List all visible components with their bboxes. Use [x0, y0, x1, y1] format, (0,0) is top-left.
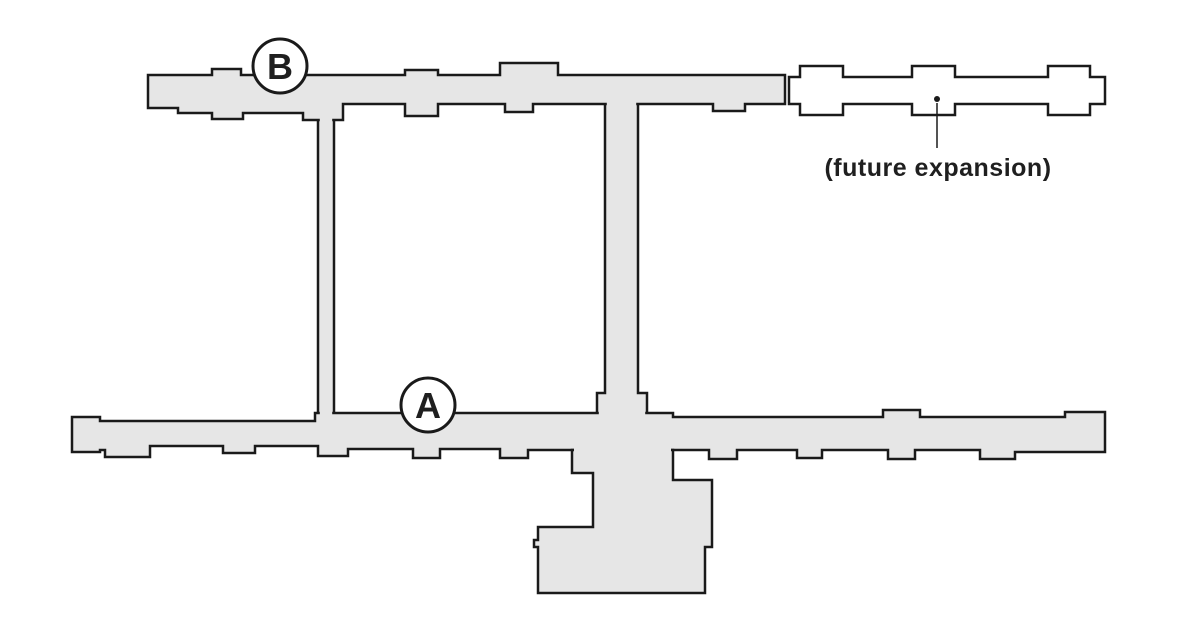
join-patch-corridor-west-top	[320, 117, 332, 124]
join-patch-south-extension	[574, 447, 671, 455]
corridor-west	[318, 114, 334, 419]
wing-marker-a: A	[401, 378, 455, 432]
join-patch-corridor-west-bottom	[320, 410, 332, 417]
site-plan-svg: (future expansion)BA	[0, 0, 1200, 640]
wing-b-north	[148, 63, 785, 120]
wing-marker-label-b: B	[267, 46, 293, 87]
future-expansion-label: (future expansion)	[824, 154, 1051, 182]
wing-marker-b: B	[253, 39, 307, 93]
corridor-east	[597, 100, 647, 417]
annotation-dot	[934, 96, 940, 102]
join-patch-corridor-east-bottom	[599, 410, 645, 416]
future-expansion-wing	[789, 66, 1105, 115]
floor-plan-stage: (future expansion)BA	[0, 0, 1200, 640]
south-extension	[534, 450, 712, 593]
wing-marker-label-a: A	[415, 385, 441, 426]
join-patch-corridor-east-top	[607, 101, 636, 108]
